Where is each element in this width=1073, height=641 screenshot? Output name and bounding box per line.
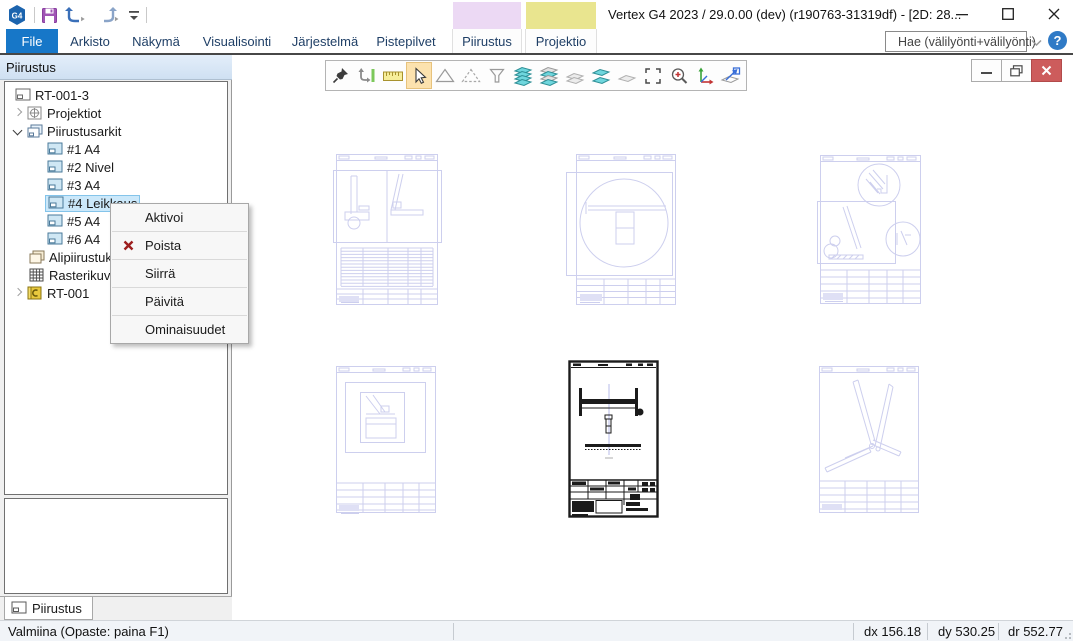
toolbar-icon-layers-off[interactable] [562,62,588,89]
tree-item-rasterikuvat[interactable]: Rasterikuva [5,266,120,284]
context-menu: Aktivoi Poista Siirrä Päivitä Ominaisuud… [110,203,249,344]
sidebar-header: Piirustus [0,55,232,80]
sheet-icon [48,196,64,210]
ribbon-tab-bar: File Arkisto Näkymä Visualisointi Järjes… [0,29,1073,53]
search-input[interactable]: Hae (välilyönti+välilyönti) [885,31,1027,52]
sheet-thumbnail-3[interactable] [817,151,925,307]
menu-item-poista[interactable]: Poista [111,232,248,259]
tree-item-sheet-6[interactable]: #6 A4 [5,230,102,248]
separator [34,7,35,23]
status-dr: dr 552.77 [1008,624,1063,639]
undo-icon[interactable] [64,5,90,25]
expand-icon[interactable] [13,108,23,118]
tab-visualisointi[interactable]: Visualisointi [194,29,280,53]
vertex-g4-window: G4 [0,0,1073,641]
document-close-icon[interactable] [1031,59,1062,82]
search-dropdown-chevron-icon[interactable] [1031,35,1042,50]
app-logo-icon[interactable]: G4 [6,4,28,26]
tree-item-sheet-1[interactable]: #1 A4 [5,140,102,158]
menu-item-siirra[interactable]: Siirrä [111,260,248,287]
toolbar-icon-layers-used[interactable] [536,62,562,89]
model-icon [27,286,43,300]
delete-x-icon [111,240,145,251]
toolbar-icon-polygon-dashed[interactable] [458,62,484,89]
tree-item-rt-001-3[interactable]: RT-001-3 [5,86,91,104]
toolbar-icon-ruler[interactable] [380,62,406,89]
toolbar-icon-layers-pair[interactable] [588,62,614,89]
window-title: Vertex G4 2023 / 29.0.00 (dev) (r190763-… [608,7,961,22]
sheets-icon [27,124,43,138]
status-dx: dx 156.18 [864,624,921,639]
minimize-window-icon[interactable] [951,3,973,25]
sheet-thumbnail-5-active[interactable] [568,360,659,518]
sheet-icon [47,160,63,174]
sheet-thumbnail-6[interactable] [815,362,925,518]
toolbar-icon-select-cursor[interactable] [406,62,432,89]
tree-item-piirustusarkit[interactable]: Piirustusarkit [5,122,123,140]
status-divider [998,623,999,640]
raster-grid-icon [29,268,45,282]
close-window-icon[interactable] [1043,3,1065,25]
tree-item-sheet-3[interactable]: #3 A4 [5,176,102,194]
tab-nakyma[interactable]: Näkymä [126,29,186,53]
toolbar-icon-fit-view[interactable] [718,62,744,89]
menu-item-paivita[interactable]: Päivitä [111,288,248,315]
sheet-icon [47,214,63,228]
maximize-window-icon[interactable] [997,3,1019,25]
tree-item-rt-001[interactable]: RT-001 [5,284,91,302]
document-minimize-icon[interactable] [971,59,1002,82]
svg-text:G4: G4 [12,12,23,21]
status-ready-text: Valmiina (Opaste: paina F1) [8,624,169,639]
redo-icon[interactable] [96,5,122,25]
toolbar-icon-axes[interactable] [692,62,718,89]
resize-grip[interactable] [1061,629,1071,639]
sheet-icon [47,178,63,192]
status-divider [853,623,854,640]
collapse-icon[interactable] [13,126,23,136]
sheet-thumbnail-2[interactable] [566,150,680,308]
tree-item-sheet-5[interactable]: #5 A4 [5,212,102,230]
sheet-thumbnail-4[interactable] [333,362,440,518]
customize-quick-access-icon[interactable] [128,5,140,25]
drawing-canvas[interactable] [232,55,1073,620]
sidebar-tab-strip: Piirustus [0,596,232,620]
sheet-icon [47,142,63,156]
tab-arkisto[interactable]: Arkisto [62,29,118,53]
separator [146,7,147,23]
tree-item-sheet-2[interactable]: #2 Nivel [5,158,116,176]
sidebar-secondary-panel [4,498,228,594]
drawing-sheet-icon [11,601,27,615]
tree-item-projektiot[interactable]: Projektiot [5,104,103,122]
drawing-toolbar [325,60,747,91]
toolbar-icon-filter-funnel[interactable] [484,62,510,89]
sidebar-tab-piirustus[interactable]: Piirustus [4,597,93,620]
sub-drawings-icon [29,250,45,264]
window-controls [951,2,1065,26]
tab-projektio[interactable]: Projektio [525,29,597,53]
tab-file[interactable]: File [6,29,58,53]
toolbar-icon-drag-bounds[interactable] [354,62,380,89]
tree-item-alipiirustukset[interactable]: Alipiirustuk [5,248,114,266]
sheet-thumbnail-1[interactable] [333,150,442,308]
search-placeholder: Hae (välilyönti+välilyönti) [898,35,1036,49]
tab-piirustus[interactable]: Piirustus [452,29,522,53]
document-window-controls [972,59,1062,82]
toolbar-icon-polygon[interactable] [432,62,458,89]
toolbar-icon-layers-all[interactable] [510,62,536,89]
help-button[interactable]: ? [1048,31,1067,50]
menu-item-ominaisuudet[interactable]: Ominaisuudet [111,316,248,343]
status-dy: dy 530.25 [938,624,995,639]
contextual-group-projektio [526,2,596,29]
quick-access-toolbar: G4 [6,4,147,26]
menu-item-aktivoi[interactable]: Aktivoi [111,204,248,231]
toolbar-icon-zoom-area[interactable] [666,62,692,89]
toolbar-icon-pushpin[interactable] [328,62,354,89]
sheet-icon [47,232,63,246]
document-restore-icon[interactable] [1001,59,1032,82]
status-divider [927,623,928,640]
statusbar: Valmiina (Opaste: paina F1) dx 156.18 dy… [0,620,1073,641]
toolbar-icon-layer-single[interactable] [614,62,640,89]
toolbar-icon-select-area[interactable] [640,62,666,89]
status-divider [453,623,454,640]
expand-icon[interactable] [13,288,23,298]
drawing-sheet-icon [15,88,31,102]
tab-jarjestelma[interactable]: Järjestelmä [288,29,362,53]
contextual-group-piirustus [453,2,521,29]
tab-pistepilvet[interactable]: Pistepilvet [370,29,442,53]
projection-icon [27,106,43,120]
save-icon[interactable] [41,5,58,25]
